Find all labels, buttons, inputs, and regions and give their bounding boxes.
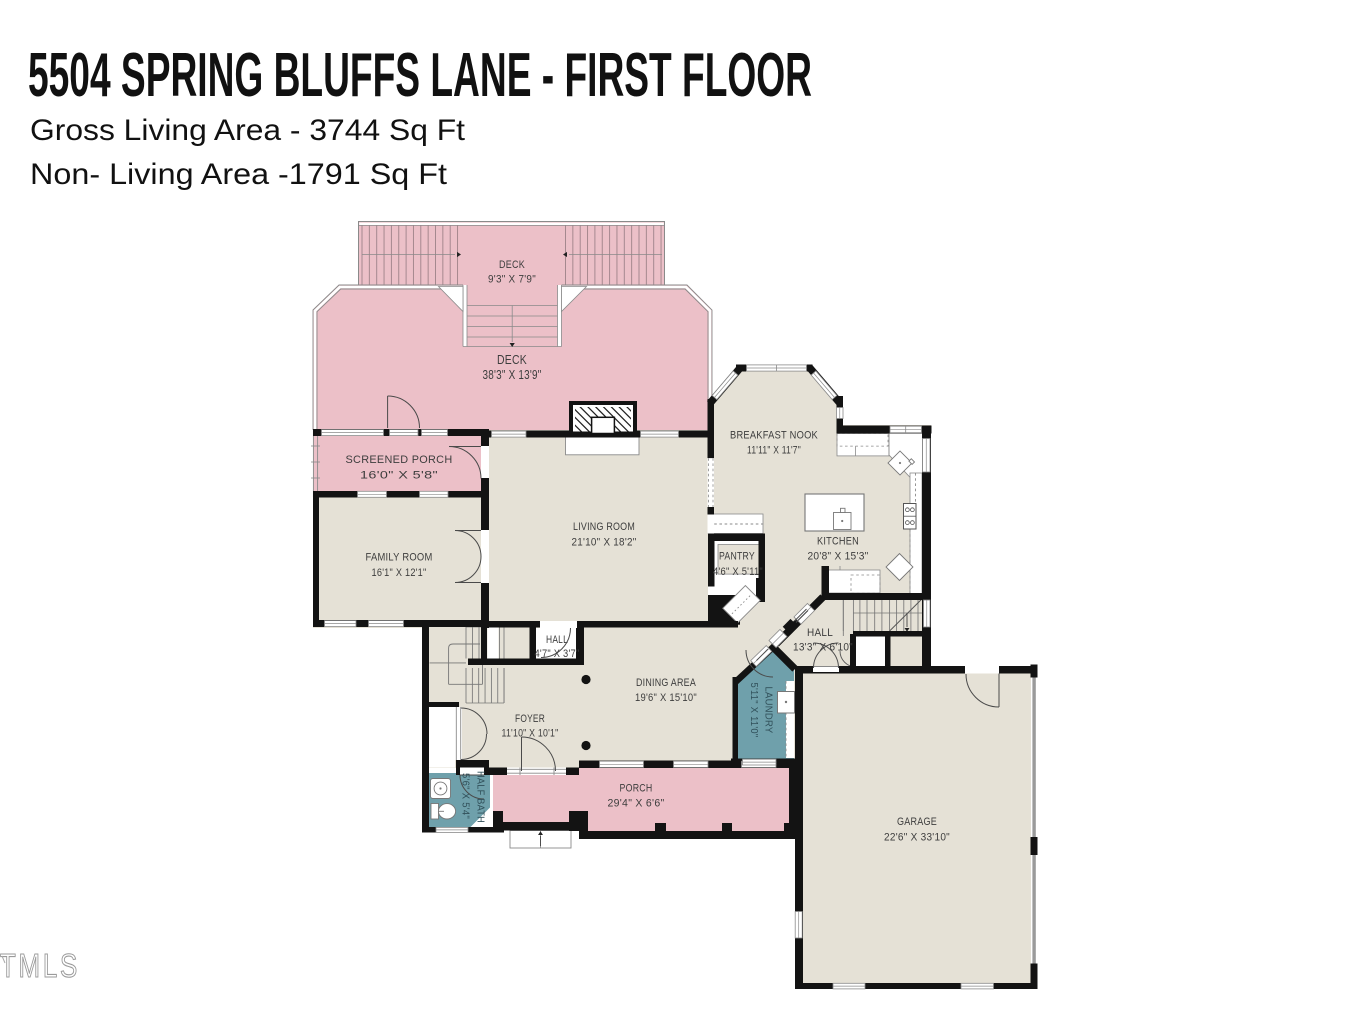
svg-text:PANTRY: PANTRY (719, 551, 755, 563)
svg-text:DECK: DECK (497, 352, 527, 367)
svg-text:4'6" X 5'11": 4'6" X 5'11" (713, 566, 763, 578)
svg-text:19'6" X 15'10": 19'6" X 15'10" (635, 692, 697, 704)
svg-text:HALL: HALL (807, 627, 833, 639)
svg-text:LIVING ROOM: LIVING ROOM (573, 521, 635, 533)
svg-text:5'6" X 5'4": 5'6" X 5'4" (460, 773, 471, 819)
svg-text:HALL: HALL (546, 634, 568, 646)
svg-text:16'0" X 5'8": 16'0" X 5'8" (360, 470, 438, 482)
svg-text:4'7" X 3'7": 4'7" X 3'7" (535, 648, 580, 660)
svg-text:11'10" X 10'1": 11'10" X 10'1" (502, 728, 559, 740)
svg-text:SCREENED PORCH: SCREENED PORCH (346, 454, 453, 466)
svg-text:21'10" X 18'2": 21'10" X 18'2" (572, 537, 637, 549)
svg-text:5'11" X 11'0": 5'11" X 11'0" (748, 683, 759, 738)
svg-text:BREAKFAST NOOK: BREAKFAST NOOK (730, 430, 818, 442)
svg-text:Gross Living Area - 3744 Sq Ft: Gross Living Area - 3744 Sq Ft (30, 114, 466, 147)
svg-text:11'11" X 11'7": 11'11" X 11'7" (747, 445, 801, 457)
svg-text:DINING AREA: DINING AREA (636, 677, 696, 689)
svg-text:13'3" X 6'10": 13'3" X 6'10" (793, 642, 853, 654)
svg-text:20'8" X 15'3": 20'8" X 15'3" (808, 551, 869, 563)
svg-text:Non- Living Area -1791 Sq Ft: Non- Living Area -1791 Sq Ft (30, 158, 448, 191)
svg-text:KITCHEN: KITCHEN (817, 536, 859, 548)
svg-text:HALF BATH: HALF BATH (475, 771, 486, 823)
svg-text:TMLS: TMLS (0, 947, 80, 984)
svg-text:FAMILY ROOM: FAMILY ROOM (366, 552, 433, 564)
svg-text:PORCH: PORCH (620, 783, 653, 795)
svg-text:DECK: DECK (499, 259, 525, 271)
svg-text:29'4" X 6'6": 29'4" X 6'6" (608, 798, 665, 810)
svg-text:9'3" X 7'9": 9'3" X 7'9" (488, 274, 536, 286)
svg-text:38'3" X 13'9": 38'3" X 13'9" (483, 367, 542, 382)
svg-text:22'6" X 33'10": 22'6" X 33'10" (884, 832, 950, 844)
svg-text:LAUNDRY: LAUNDRY (763, 687, 774, 734)
svg-text:GARAGE: GARAGE (897, 816, 937, 828)
svg-text:5504 SPRING BLUFFS LANE - FIRS: 5504 SPRING BLUFFS LANE - FIRST FLOOR (28, 41, 812, 110)
svg-text:16'1" X 12'1": 16'1" X 12'1" (372, 567, 427, 579)
svg-text:FOYER: FOYER (515, 713, 545, 725)
